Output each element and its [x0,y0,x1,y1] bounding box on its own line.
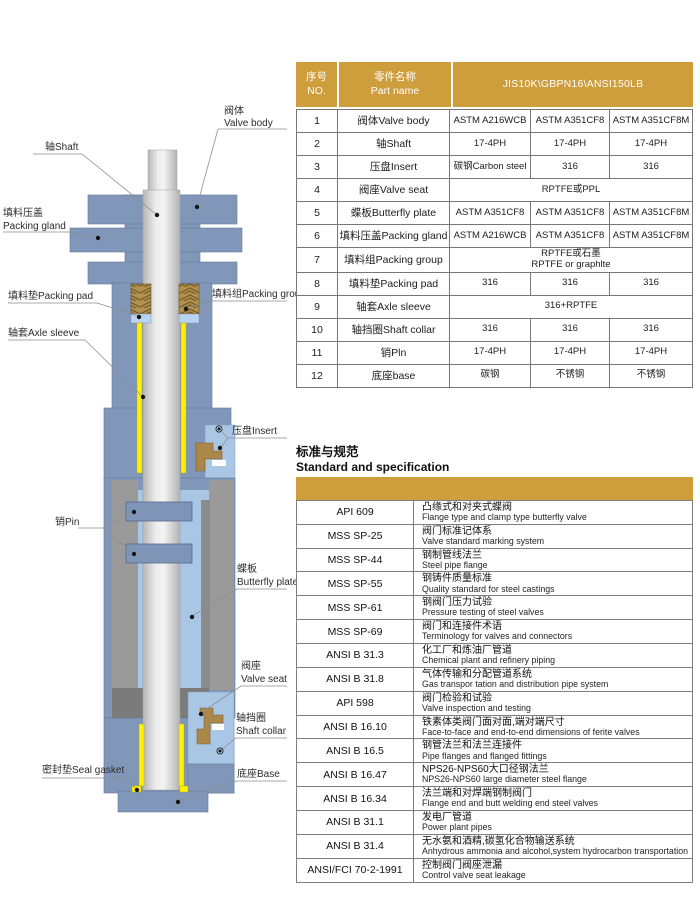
parts-table-row: 11销Pln17-4PH17-4PH17-4PH [297,341,693,364]
standard-description-en: Steel pipe flange [422,561,690,571]
standards-table-row: MSS SP-25阀门标准记体系Valve standard marking s… [297,524,693,548]
parts-table-row: 6填料压盖Packing glandASTM A216WCBASTM A351C… [297,225,693,248]
part-material: 316 [531,156,610,179]
catalog-page: 阀体 Valve body 轴Shaft 填料压盖 Packing gland … [0,0,700,897]
parts-table-body: 1阀体Valve bodyASTM A216WCBASTM A351CF8AST… [297,110,693,388]
standards-table-row: ANSI B 31.3化工厂和炼油厂管道Chemical plant and r… [297,644,693,668]
part-material: ASTM A351CF8 [531,225,610,248]
part-material: 316 [450,272,531,295]
part-material-span: RPTFE或石墨RPTFE or graphlte [450,248,693,273]
label-shaft-collar-en: Shaft collar [236,726,287,737]
standard-description-en: Terminology for valves and connectors [422,632,690,642]
standard-description-en: Valve standard marking system [422,537,690,547]
header-no: 序号 NO. [296,62,337,107]
parts-table: 1阀体Valve bodyASTM A216WCBASTM A351CF8AST… [296,109,693,388]
standard-description: 化工厂和炼油厂管道Chemical plant and refinery pip… [414,644,693,668]
part-no: 10 [297,318,338,341]
label-pin: 销Pin [55,515,79,528]
part-name: 轴Shaft [338,133,450,156]
part-material: 17-4PH [531,341,610,364]
standard-code: MSS SP-55 [297,572,414,596]
part-material: ASTM A216WCB [450,110,531,133]
parts-table-row: 12底座base碳钢不锈钢不锈钢 [297,364,693,387]
standard-description-en: Control valve seat leakage [422,871,690,881]
standard-description-en: Chemical plant and refinery piping [422,656,690,666]
standard-description-zh: 钢铸件质量标准 [422,573,690,584]
part-material: ASTM A216WCB [450,225,531,248]
standard-description-en: Pipe flanges and flanged fittings [422,752,690,762]
header-spec: JIS10K\GBPN16\ANSI150LB [453,62,693,107]
part-name: 底座base [338,364,450,387]
standard-code: ANSI B 16.10 [297,715,414,739]
part-material: 316 [610,156,693,179]
part-no: 11 [297,341,338,364]
standard-code: ANSI B 31.1 [297,811,414,835]
part-name: 填料垫Packing pad [338,272,450,295]
standard-code: ANSI B 16.47 [297,763,414,787]
part-material: 17-4PH [450,341,531,364]
standards-table-row: ANSI B 31.8气体传输和分配管道系统Gas transpor tatio… [297,667,693,691]
standards-table-body: API 609凸缘式和对夹式蝶阀Flange type and clamp ty… [297,500,693,882]
header-spec-text: JIS10K\GBPN16\ANSI150LB [503,78,644,92]
part-no: 5 [297,202,338,225]
header-part-name: 零件名称 Part name [339,62,451,107]
standard-description-zh: 钢管法兰和法兰连接件 [422,740,690,751]
label-shaft: 轴Shaft [45,140,79,153]
standards-table-row: MSS SP-69阀门和连接件术语Terminology for valves … [297,620,693,644]
standard-code: ANSI B 31.4 [297,834,414,858]
standard-description: 钢管法兰和法兰连接件Pipe flanges and flanged fitti… [414,739,693,763]
label-base: 底座Base [237,767,280,780]
part-no: 6 [297,225,338,248]
standard-description: 钢制管线法兰Steel pipe flange [414,548,693,572]
parts-table-row: 5蝶板Butterfly plateASTM A351CF8ASTM A351C… [297,202,693,225]
label-packing-pad: 填料垫Packing pad [8,289,93,302]
collar-pocket-shape [188,692,234,766]
part-material: 316 [531,272,610,295]
right-wall-shape [209,480,234,690]
parts-table-row: 10轴挡圈Shaft collar316316316 [297,318,693,341]
standard-description: 钢铸件质量标准Quality standard for steel castin… [414,572,693,596]
part-material: 316 [610,272,693,295]
header-no-en: NO. [307,85,326,99]
part-material: ASTM A351CF8 [450,202,531,225]
part-no: 2 [297,133,338,156]
standard-description: 发电厂管道Power plant pipes [414,811,693,835]
part-material: 17-4PH [610,341,693,364]
standard-description: 凸缘式和对夹式蝶阀Flange type and clamp type butt… [414,500,693,524]
part-material: ASTM A351CF8M [610,110,693,133]
standard-description-en: Gas transpor tation and distribution pip… [422,680,690,690]
part-material: 316 [610,318,693,341]
standard-code: MSS SP-25 [297,524,414,548]
label-packing-gland: 填料压盖 [3,206,43,219]
part-material: ASTM A351CF8 [531,202,610,225]
part-no: 8 [297,272,338,295]
standard-description: 气体传输和分配管道系统Gas transpor tation and distr… [414,667,693,691]
standard-code: API 609 [297,500,414,524]
part-material: ASTM A351CF8M [610,202,693,225]
part-material: 不锈钢 [531,364,610,387]
standard-description-en: Flange end and butt welding end steel va… [422,799,690,809]
part-no: 7 [297,248,338,273]
part-no: 3 [297,156,338,179]
part-name: 轴套Axle sleeve [338,295,450,318]
part-material: 17-4PH [610,133,693,156]
standards-table-row: API 609凸缘式和对夹式蝶阀Flange type and clamp ty… [297,500,693,524]
part-material: 316 [450,318,531,341]
part-name: 阀座Valve seat [338,179,450,202]
standards-title-en: Standard and specification [296,460,693,474]
parts-table-row: 7填料组Packing groupRPTFE或石墨RPTFE or graphl… [297,248,693,273]
header-part-name-en: Part name [371,85,419,99]
standards-section-title: 标准与规范 Standard and specification [296,441,693,474]
standard-description: 阀门标准记体系Valve standard marking system [414,524,693,548]
standard-description: 钢阀门压力试验Pressure testing of steel valves [414,596,693,620]
standard-code: MSS SP-69 [297,620,414,644]
valve-cross-section-diagram: 阀体 Valve body 轴Shaft 填料压盖 Packing gland … [0,0,296,897]
part-material-span: RPTFE或PPL [450,179,693,202]
standards-table-row: ANSI/FCI 70-2-1991控制阀门阀座泄漏Control valve … [297,858,693,882]
part-material: 17-4PH [531,133,610,156]
parts-table-row: 2轴Shaft17-4PH17-4PH17-4PH [297,133,693,156]
standard-description-en: Face-to-face and end-to-end dimensions o… [422,728,690,738]
tables-column: 序号 NO. 零件名称 Part name JIS10K\GBPN16\ANSI… [296,62,693,883]
standard-description-en: Power plant pipes [422,823,690,833]
label-valve-seat: 阀座 [241,659,261,672]
part-material: 316 [531,318,610,341]
standard-description-en: Pressure testing of steel valves [422,608,690,618]
part-no: 12 [297,364,338,387]
standards-table-row: MSS SP-55钢铸件质量标准Quality standard for ste… [297,572,693,596]
parts-table-row: 8填料垫Packing pad316316316 [297,272,693,295]
part-material: ASTM A351CF8 [531,110,610,133]
standards-table-row: MSS SP-61钢阀门压力试验Pressure testing of stee… [297,596,693,620]
label-axle-sleeve: 轴套Axle sleeve [8,326,80,339]
parts-table-row: 3压盘Insert碳钢Carbon steel316316 [297,156,693,179]
standard-description-en: Anhydrous ammonia and alcohol,system hyd… [422,847,690,857]
part-material: 碳钢 [450,364,531,387]
part-material: 碳钢Carbon steel [450,156,531,179]
standard-code: MSS SP-44 [297,548,414,572]
standard-code: ANSI B 31.3 [297,644,414,668]
part-material: ASTM A351CF8M [610,225,693,248]
part-name: 轴挡圈Shaft collar [338,318,450,341]
standard-description: 铁素体类阀门面对面,端对端尺寸Face-to-face and end-to-e… [414,715,693,739]
parts-table-row: 1阀体Valve bodyASTM A216WCBASTM A351CF8AST… [297,110,693,133]
label-valve-body: 阀体 [224,104,244,117]
label-butterfly: 蝶板 [237,562,257,575]
standards-table: API 609凸缘式和对夹式蝶阀Flange type and clamp ty… [296,500,693,883]
part-material: 不锈钢 [610,364,693,387]
standard-code: API 598 [297,691,414,715]
standard-code: ANSI/FCI 70-2-1991 [297,858,414,882]
standard-code: ANSI B 31.8 [297,667,414,691]
label-seal-gasket: 密封垫Seal gasket [42,763,124,776]
standard-description-en: Quality standard for steel castings [422,585,690,595]
standard-description: 法兰端和对焊端钢制阀门Flange end and butt welding e… [414,787,693,811]
standard-description: 阀门和连接件术语Terminology for valves and conne… [414,620,693,644]
part-no: 1 [297,110,338,133]
label-butterfly-en: Butterfly plate [237,577,296,588]
standard-description: NPS26-NPS60大口径钢法兰NPS26-NPS60 large diame… [414,763,693,787]
standard-description: 无水氨和酒精,碳氢化合物输送系统Anhydrous ammonia and al… [414,834,693,858]
standard-description: 阀门检验和试验Valve inspection and testing [414,691,693,715]
standards-title-zh: 标准与规范 [296,441,693,460]
part-no: 9 [297,295,338,318]
standard-description-en: NPS26-NPS60 large diameter steel flange [422,775,690,785]
part-name: 压盘Insert [338,156,450,179]
part-name: 填料压盖Packing gland [338,225,450,248]
standard-description: 控制阀门阀座泄漏Control valve seat leakage [414,858,693,882]
standards-table-header-bar [296,477,693,500]
standards-table-row: MSS SP-44钢制管线法兰Steel pipe flange [297,548,693,572]
parts-table-header: 序号 NO. 零件名称 Part name JIS10K\GBPN16\ANSI… [296,62,693,107]
label-valve-seat-en: Valve seat [241,674,287,685]
part-name: 蝶板Butterfly plate [338,202,450,225]
standards-table-row: ANSI B 16.5钢管法兰和法兰连接件Pipe flanges and fl… [297,739,693,763]
header-no-zh: 序号 [306,71,327,85]
standard-code: ANSI B 16.34 [297,787,414,811]
shaft-shape [143,150,180,790]
label-packing-group: 填料组Packing group [212,287,296,300]
part-name: 销Pln [338,341,450,364]
standards-table-row: ANSI B 16.47NPS26-NPS60大口径钢法兰NPS26-NPS60… [297,763,693,787]
standard-description-en: Flange type and clamp type butterfly val… [422,513,690,523]
standards-table-row: ANSI B 16.34法兰端和对焊端钢制阀门Flange end and bu… [297,787,693,811]
label-valve-body-en: Valve body [224,118,273,129]
part-material-span: 316+RPTFE [450,295,693,318]
label-shaft-collar: 轴挡圈 [236,711,266,724]
part-material: 17-4PH [450,133,531,156]
part-name: 填料组Packing group [338,248,450,273]
standard-description-en: Valve inspection and testing [422,704,690,714]
label-insert: 压盘Insert [232,424,277,437]
standard-code: MSS SP-61 [297,596,414,620]
part-no: 4 [297,179,338,202]
standards-table-row: ANSI B 31.1发电厂管道Power plant pipes [297,811,693,835]
part-name: 阀体Valve body [338,110,450,133]
parts-table-row: 9轴套Axle sleeve316+RPTFE [297,295,693,318]
label-packing-gland-en: Packing gland [3,221,66,232]
standard-code: ANSI B 16.5 [297,739,414,763]
standards-table-row: ANSI B 31.4无水氨和酒精,碳氢化合物输送系统Anhydrous amm… [297,834,693,858]
parts-table-row: 4阀座Valve seatRPTFE或PPL [297,179,693,202]
header-part-name-zh: 零件名称 [374,71,416,85]
standards-table-row: API 598阀门检验和试验Valve inspection and testi… [297,691,693,715]
standards-table-row: ANSI B 16.10铁素体类阀门面对面,端对端尺寸Face-to-face … [297,715,693,739]
